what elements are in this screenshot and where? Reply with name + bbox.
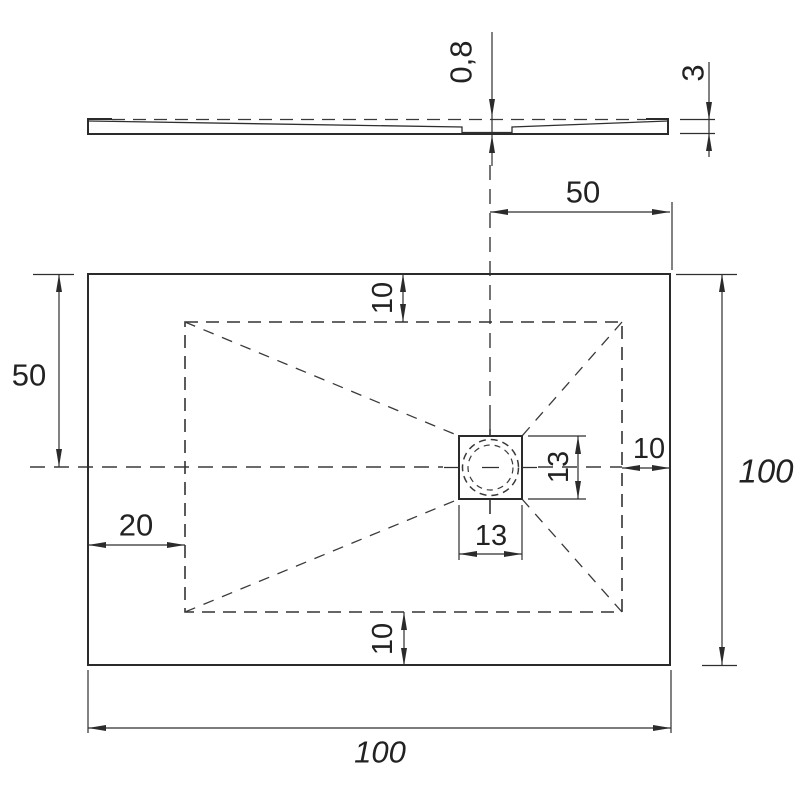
dim-recess-depth: 0,8 [444, 32, 496, 166]
arrow-down-icon [56, 449, 62, 467]
dim-label-recess-depth: 0,8 [444, 40, 479, 83]
dim-label-drain-13v: 13 [543, 451, 575, 483]
arrow-up-icon [489, 135, 495, 153]
arrow-up-icon [56, 274, 62, 292]
arrow-down-icon [400, 304, 406, 322]
arrow-up-icon [400, 274, 406, 292]
arrow-right-icon [652, 209, 670, 215]
shower-tray-dimension-drawing: 0,8 3 50 [0, 0, 800, 800]
dim-top-10: 10 [367, 274, 406, 322]
dim-edge-thickness: 3 [676, 62, 716, 157]
dim-label-bottom-10: 10 [367, 623, 399, 655]
technical-drawing: 0,8 3 50 [0, 0, 800, 800]
arrow-up-icon [719, 274, 725, 292]
arrow-up-icon [401, 612, 407, 630]
dim-right-10: 10 [622, 433, 670, 471]
dim-edge-thickness-extension-lines [680, 120, 715, 134]
dim-label-edge-thickness: 3 [676, 64, 711, 81]
side-profile-outline [88, 119, 668, 134]
arrow-up-icon [706, 133, 712, 151]
arrow-down-icon [489, 99, 495, 117]
dim-total-height-100: 100 [676, 274, 794, 666]
side-view: 0,8 3 [88, 32, 715, 166]
dim-height-100-extension-lines [676, 275, 737, 666]
plan-view: 50 50 10 20 13 [12, 165, 794, 770]
dim-label-left-20: 20 [119, 508, 153, 543]
dim-label-width-100: 100 [354, 735, 406, 770]
dim-label-left-50: 50 [12, 358, 46, 393]
arrow-down-icon [719, 647, 725, 665]
arrow-down-icon [706, 102, 712, 120]
dim-left-50: 50 [12, 274, 74, 467]
arrow-right-icon [652, 465, 670, 471]
dim-top-50: 50 [490, 175, 672, 271]
arrow-up-icon [575, 436, 581, 454]
dim-label-drain-13h: 13 [475, 520, 507, 552]
dim-bottom-10: 10 [367, 612, 407, 666]
arrow-right-icon [167, 542, 185, 548]
tray-outer-rectangle [88, 274, 670, 665]
dim-width-100-extension-lines [88, 670, 671, 733]
arrow-down-icon [575, 481, 581, 499]
dim-label-right-10: 10 [633, 433, 665, 465]
arrow-left-icon [622, 465, 640, 471]
dim-label-height-100: 100 [738, 453, 794, 490]
dim-label-top-50: 50 [566, 175, 600, 210]
dim-left-20: 20 [88, 508, 185, 549]
arrow-left-icon [490, 209, 508, 215]
center-lines-dashed [30, 165, 622, 517]
dim-label-top-10: 10 [367, 282, 399, 314]
side-sloped-surface-and-recess [88, 121, 668, 133]
arrow-down-icon [401, 648, 407, 666]
arrow-left-icon [88, 725, 106, 731]
arrow-left-icon [88, 542, 106, 548]
arrow-right-icon [653, 725, 671, 731]
dim-total-width-100: 100 [88, 670, 671, 770]
